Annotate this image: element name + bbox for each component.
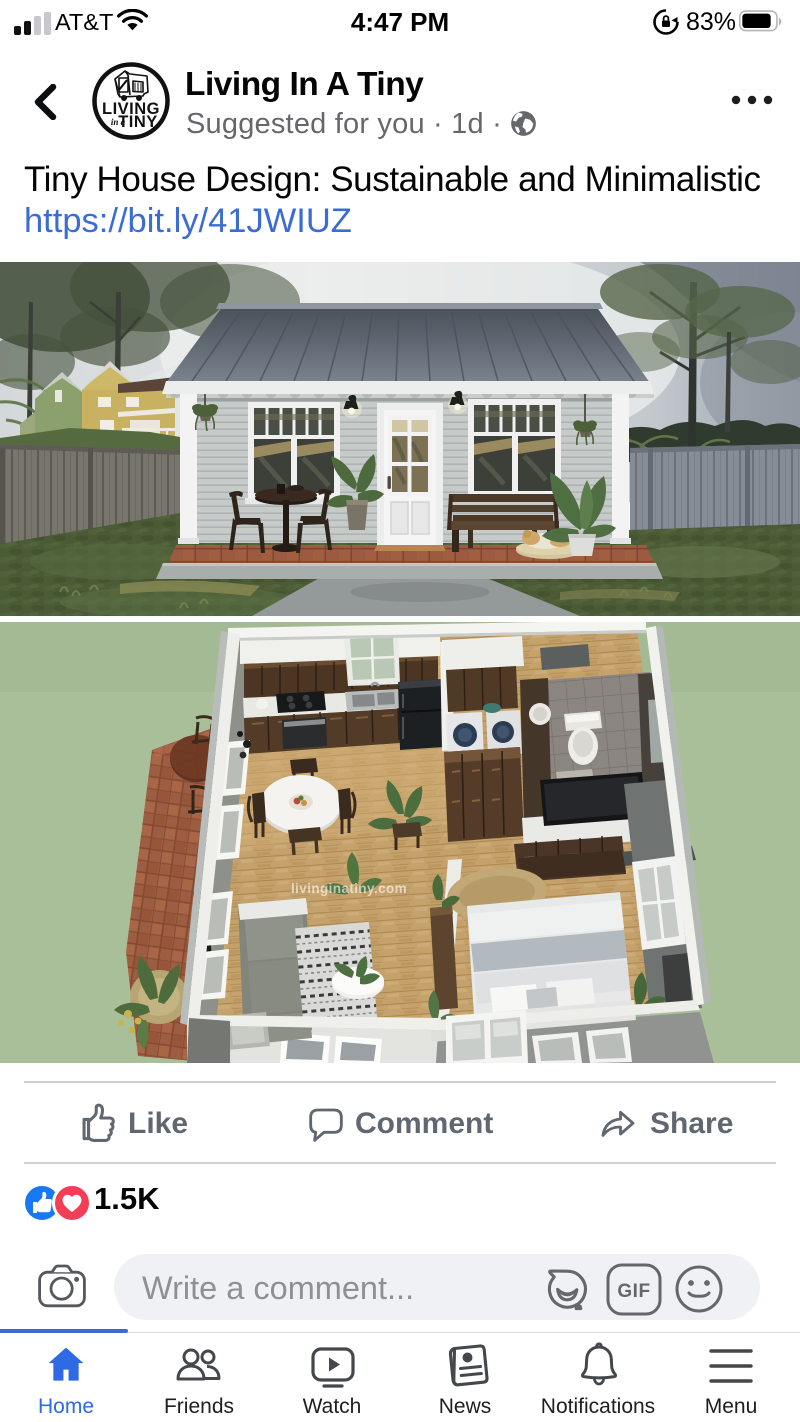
svg-text:TINY: TINY (118, 113, 158, 131)
svg-text:livinginatiny.com: livinginatiny.com (291, 881, 407, 896)
svg-text:GIF: GIF (617, 1281, 650, 1302)
